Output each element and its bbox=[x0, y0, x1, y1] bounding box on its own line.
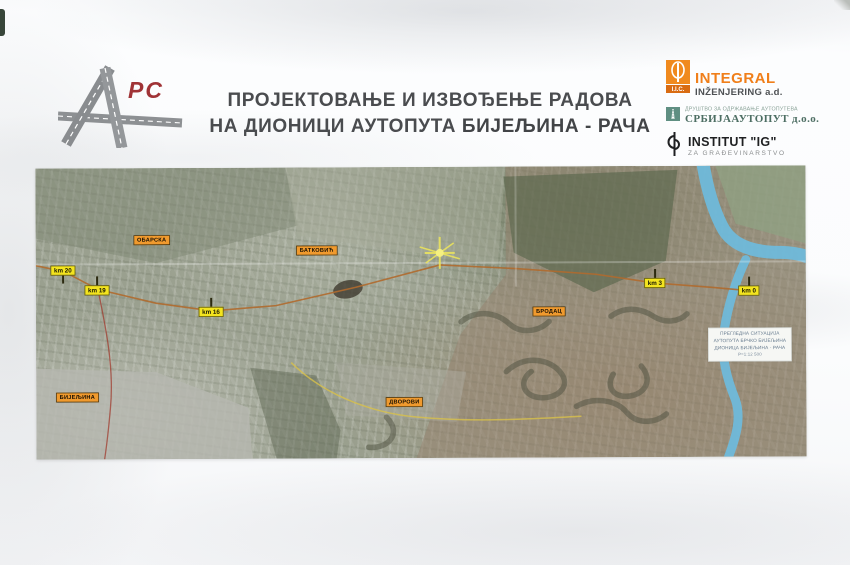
km-tick bbox=[654, 269, 656, 278]
km-tick bbox=[210, 298, 212, 307]
km-tick bbox=[62, 275, 64, 284]
srbijaautoput-logo-row: ДРУШТВО ЗА ОДРЖАВАЊЕ АУТОПУТЕВА СРБИЈААУ… bbox=[666, 105, 816, 125]
institut-name: INSTITUT "IG" bbox=[688, 135, 786, 149]
project-title: ПРОЈЕКТОВАЊЕ И ИЗВОЂЕЊЕ РАДОВА НА ДИОНИЦ… bbox=[165, 88, 695, 139]
dark-shadow-band bbox=[250, 367, 340, 458]
km-marker-20: km 20 bbox=[50, 265, 75, 275]
integral-text: INTEGRAL INŽENJERING a.d. bbox=[695, 60, 783, 98]
institut-ig-logo-row: INSTITUT "IG" ZA GRAĐEVINARSTVO bbox=[666, 132, 816, 157]
integral-logo-row: I.I.C. INTEGRAL INŽENJERING a.d. bbox=[666, 60, 816, 98]
title-line-1: ПРОЈЕКТОВАЊЕ И ИЗВОЂЕЊЕ РАДОВА bbox=[165, 88, 695, 114]
srbijaautoput-text: ДРУШТВО ЗА ОДРЖАВАЊЕ АУТОПУТЕВА СРБИЈААУ… bbox=[685, 105, 822, 125]
institut-text: INSTITUT "IG" ZA GRAĐEVINARSTVO bbox=[688, 135, 786, 157]
dark-fields-patch bbox=[35, 168, 297, 264]
km-marker-19: km 19 bbox=[85, 285, 110, 295]
map-feature-overlay bbox=[35, 165, 806, 459]
km-marker-16: km 16 bbox=[199, 307, 224, 317]
km-marker-3: km 3 bbox=[644, 278, 665, 288]
banner-corner-shadow bbox=[834, 0, 850, 10]
town-label-batkovic: БАТКОВИЋ bbox=[296, 245, 337, 255]
institut-subtitle: ZA GRAĐEVINARSTVO bbox=[688, 150, 786, 157]
title-line-2-prefix: НА ДИОНИЦИ АУТОПУТА bbox=[209, 116, 462, 137]
photo-of-project-banner: { "banner": { "logo": { "suffix": "РС" }… bbox=[0, 0, 850, 565]
srbijaautoput-name: СРБИЈААУТОПУТ д.о.о. bbox=[685, 113, 822, 125]
title-section-name: БИЈЕЉИНА - РАЧА bbox=[462, 116, 651, 137]
background-gap-left bbox=[0, 9, 5, 36]
integral-name: INTEGRAL bbox=[695, 71, 783, 86]
institut-ig-emblem-icon bbox=[666, 132, 683, 156]
town-label-dvorovi: ДВОРОВИ bbox=[386, 397, 423, 407]
partner-logos: I.I.C. INTEGRAL INŽENJERING a.d. ДРУШТВО… bbox=[666, 60, 816, 164]
km-marker-0: km 0 bbox=[738, 285, 759, 295]
map-title-block: ПРЕГЛЕДНА СИТУАЦИЈА АУТОПУТА БРЧКО БИЈЕЉ… bbox=[708, 327, 792, 362]
integral-subtitle: INŽENJERING a.d. bbox=[695, 87, 783, 98]
town-label-obarska: ОБАРСКА bbox=[134, 235, 170, 245]
town-label-brodac: БРОДАЦ bbox=[533, 306, 566, 316]
integral-tree-icon: I.I.C. bbox=[666, 60, 690, 93]
town-label-bijeljina: БИЈЕЉИНА bbox=[56, 393, 98, 403]
logo-rs-letters: РС bbox=[128, 77, 164, 103]
km-tick bbox=[748, 277, 750, 286]
route-overview-map: ОБАРСКА БАТКОВИЋ БРОДАЦ ДВОРОВИ БИЈЕЉИНА… bbox=[35, 165, 806, 459]
title-block-scale: Р=1:12 500 bbox=[710, 352, 789, 359]
km-tick bbox=[96, 276, 98, 285]
iic-badge-text: I.I.C. bbox=[672, 87, 685, 93]
bijeljina-urban-area bbox=[36, 368, 252, 460]
highway-square-icon bbox=[666, 107, 680, 121]
dvorovi-urban-area bbox=[336, 362, 466, 423]
srbijaautoput-tagline: ДРУШТВО ЗА ОДРЖАВАЊЕ АУТОПУТЕВА bbox=[685, 106, 798, 112]
title-line-2: НА ДИОНИЦИ АУТОПУТА БИЈЕЉИНА - РАЧА bbox=[165, 114, 695, 140]
